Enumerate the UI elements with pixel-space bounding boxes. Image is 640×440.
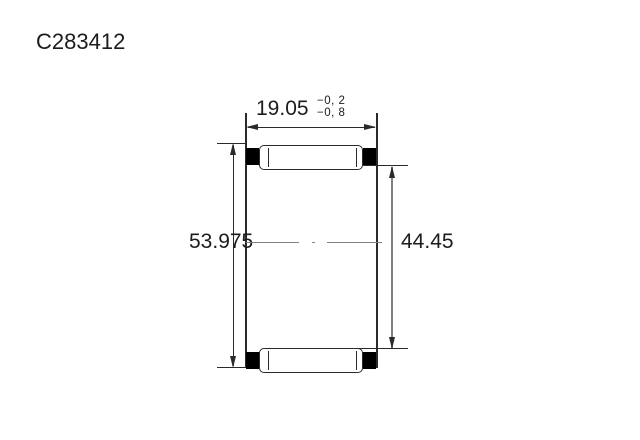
od-dimension-label: 53.975 [189,231,253,252]
id-extension-line-bottom [356,348,408,349]
width-tolerance-upper: −0, 2 [317,96,345,108]
id-arrowhead-bottom [389,337,395,349]
od-arrowhead-bottom [230,356,236,368]
width-dimension-label: 19.05 [256,98,309,119]
part-number: C283412 [36,31,125,53]
top-roller-end-line-right [356,148,357,167]
width-tolerance-lower: −0, 8 [317,108,345,120]
width-arrowhead-left [246,124,258,130]
centerline-dash-right [327,242,382,243]
top-roller-end-line-left [268,148,269,167]
bottom-roller-end-line-right [356,351,357,370]
bottom-roller-cage [259,348,363,373]
bearing-drawing-canvas: C283412 19.05 −0, 2 −0, 8 53.975 44.45 [0,0,640,440]
bottom-right-seal-block [363,352,376,369]
width-dimension-line [248,127,375,128]
od-dimension-line [233,145,234,366]
width-arrowhead-right [364,124,376,130]
bearing-right-face-line [376,113,378,368]
id-arrowhead-top [389,166,395,178]
id-extension-line-top [363,165,408,166]
top-right-seal-block [363,148,376,165]
id-dimension-line [391,167,393,348]
bottom-left-seal-block [246,352,259,369]
top-left-seal-block [246,148,259,165]
bottom-roller-end-line-left [268,351,269,370]
centerline-dash-left [246,242,299,243]
id-dimension-label: 44.45 [401,231,454,252]
top-roller-cage [259,145,363,170]
od-arrowhead-top [230,143,236,155]
centerline-dot [312,242,315,243]
